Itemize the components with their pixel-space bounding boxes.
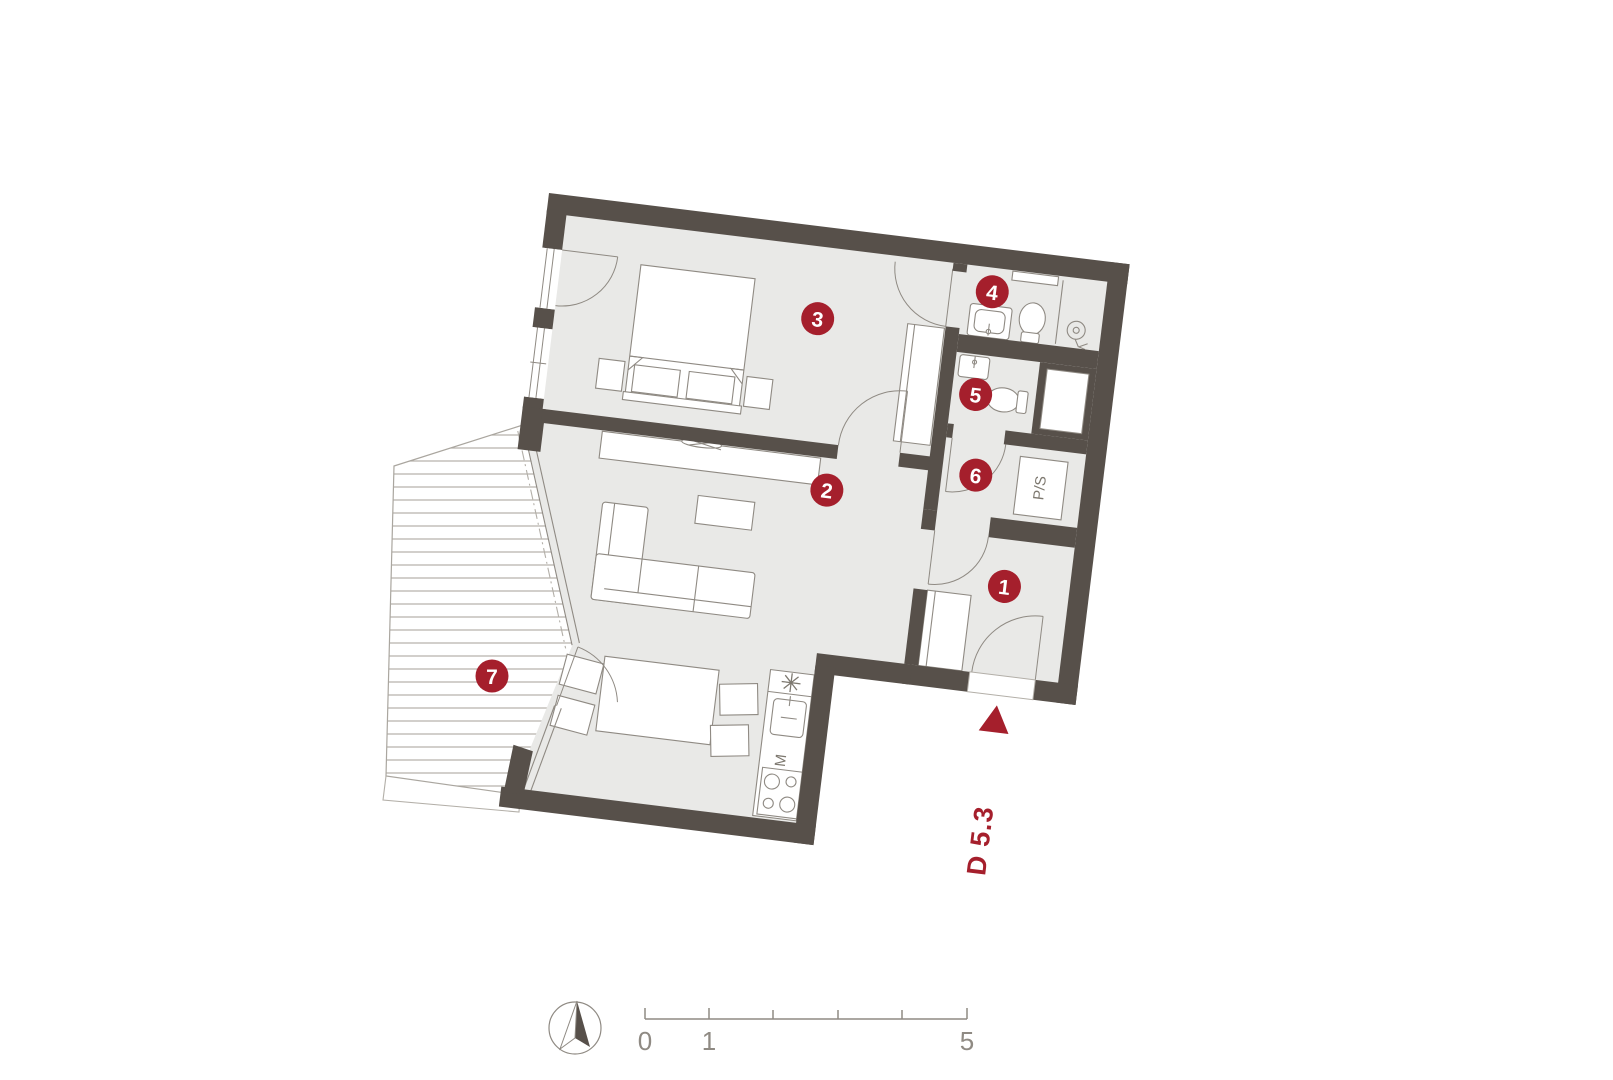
chair	[710, 725, 749, 757]
floor-plan-svg: P/S ✳ M 3 4 5 6 2	[0, 0, 1613, 1080]
bath4-sink	[967, 303, 1013, 340]
north-arrow-icon	[549, 1001, 601, 1054]
installation-shaft	[1040, 369, 1089, 434]
entrance-marker-triangle	[979, 704, 1012, 734]
scale-tick-5: 5	[960, 1026, 974, 1056]
pillow	[686, 371, 735, 403]
cooktop-star-icon: ✳	[778, 667, 803, 699]
scale-tick-1: 1	[702, 1026, 716, 1056]
floor-plan-page: P/S ✳ M 3 4 5 6 2	[0, 0, 1613, 1080]
bed	[622, 264, 757, 413]
unit-label: D 5.3	[961, 804, 999, 877]
nightstand	[743, 377, 772, 410]
pillow	[631, 365, 680, 397]
building-plan: P/S ✳ M 3 4 5 6 2	[471, 193, 1130, 885]
ps-label: P/S	[1030, 475, 1050, 501]
cooktop	[757, 767, 802, 819]
badge-room-7: 7	[476, 660, 509, 693]
nightstand	[596, 358, 625, 391]
chair	[720, 684, 759, 716]
hall-wardrobe	[918, 590, 971, 671]
scale-tick-0: 0	[638, 1026, 652, 1056]
dining-table	[596, 656, 719, 744]
kitchen-m-label: M	[772, 753, 790, 767]
svg-text:7: 7	[486, 666, 498, 689]
scale-bar: 0 1 5	[638, 1008, 974, 1056]
